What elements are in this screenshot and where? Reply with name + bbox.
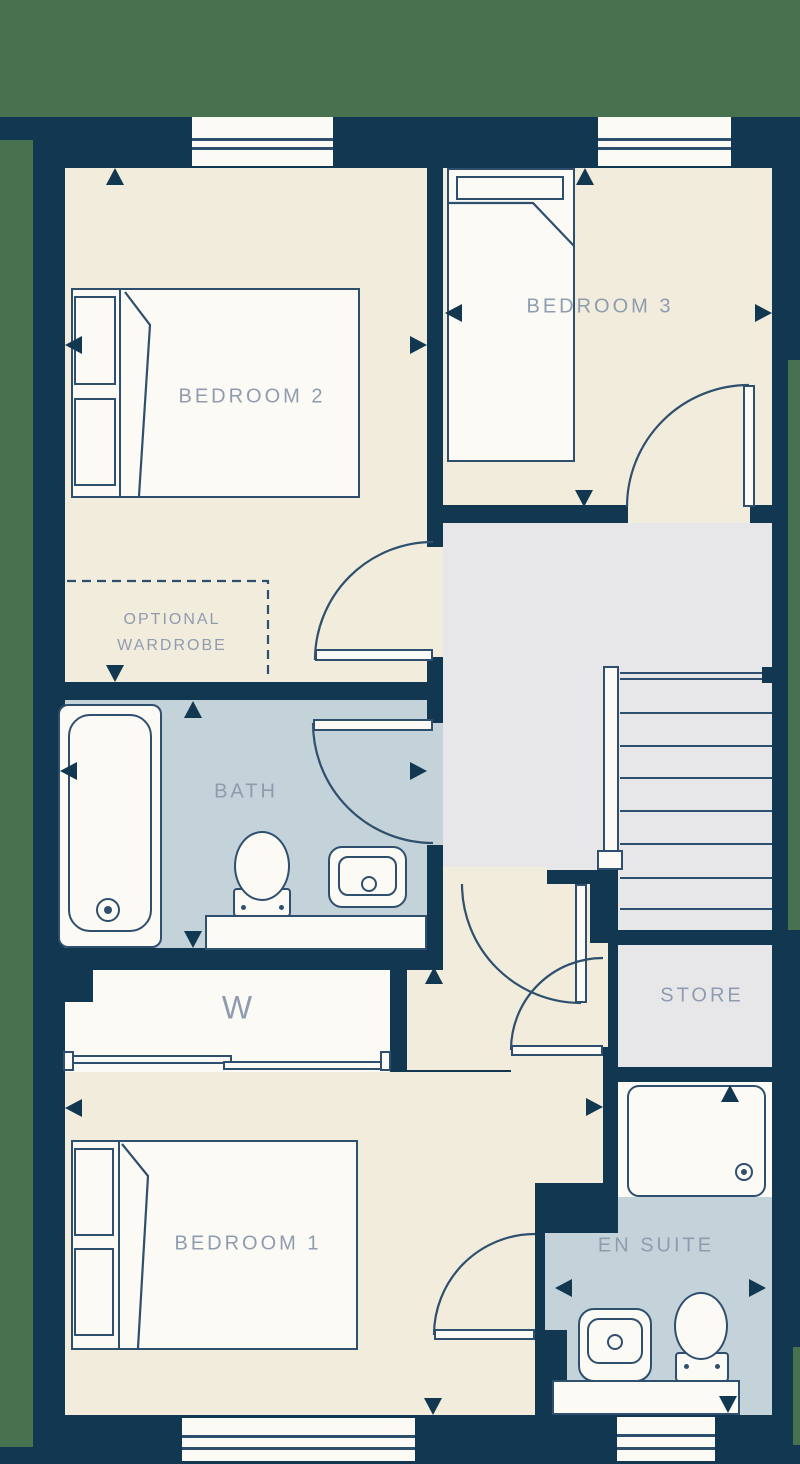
bath-counter	[205, 915, 427, 950]
window-bedroom3	[598, 117, 731, 166]
window-bedroom1	[182, 1418, 415, 1461]
door-leaf-bedroom2	[315, 649, 433, 661]
window-bedroom2-bar1	[192, 138, 333, 141]
doorway-bath	[427, 723, 443, 845]
stair-newel-post	[597, 850, 623, 870]
doorway-bedroom3	[628, 505, 750, 523]
floor-plan: BEDROOM 2 BEDROOM 3 BEDROOM 1 BATH STORE…	[0, 0, 800, 1464]
bed1-pillow-bottom	[74, 1248, 114, 1336]
outside-right-strip-upper	[788, 360, 800, 930]
door-leaf-bath	[313, 719, 433, 731]
toilet-ensuite-bowl-icon	[674, 1292, 728, 1360]
sliding-door-left	[68, 1055, 232, 1064]
direction-marker-up-icon	[721, 1085, 739, 1102]
outside-left-strip	[0, 140, 33, 1447]
shower-drain-dot	[741, 1169, 747, 1175]
window-bedroom1-bar1	[182, 1435, 415, 1438]
stair-railing	[603, 666, 619, 852]
stair-step	[620, 745, 772, 747]
outside-right-strip-lower	[793, 1347, 800, 1445]
floor-stairwell	[618, 870, 772, 930]
floor-hall-lower-left	[407, 1047, 511, 1070]
stair-step	[620, 672, 772, 674]
room-label-bath: BATH	[214, 781, 278, 804]
direction-marker-right-icon	[410, 762, 427, 780]
window-ensuite-bar2	[617, 1447, 715, 1450]
room-label-bedroom3: BEDROOM 3	[526, 296, 673, 319]
room-label-wardrobe: W	[222, 990, 252, 1027]
direction-marker-down-icon	[424, 1398, 442, 1415]
window-bedroom3-bar1	[598, 138, 731, 141]
direction-marker-left-icon	[60, 762, 77, 780]
door-leaf-landing	[575, 884, 587, 1003]
direction-marker-left-icon	[445, 304, 462, 322]
direction-marker-right-icon	[755, 304, 772, 322]
basin-ensuite-drain	[607, 1334, 623, 1350]
basin-bath-drain	[361, 876, 377, 892]
bed1-pillow-top	[74, 1148, 114, 1236]
doorway-landing	[443, 867, 547, 884]
window-bedroom2	[192, 117, 333, 166]
room-label-optional-wardrobe-line1: OPTIONAL	[124, 611, 221, 629]
direction-marker-up-icon	[106, 168, 124, 185]
door-leaf-bedroom1	[511, 1045, 603, 1056]
direction-marker-right-icon	[749, 1279, 766, 1297]
toilet-ensuite-dot1	[684, 1364, 689, 1369]
window-ensuite	[617, 1417, 715, 1461]
direction-marker-left-icon	[65, 1099, 82, 1117]
direction-marker-down-icon	[575, 490, 593, 507]
floor-hall-upper	[443, 884, 590, 943]
stair-step	[620, 678, 772, 680]
sliding-door-right	[223, 1061, 387, 1070]
window-ensuite-bar1	[617, 1434, 715, 1437]
direction-marker-down-icon	[719, 1396, 737, 1413]
floor-ensuite-top	[618, 1197, 772, 1233]
direction-marker-right-icon	[586, 1098, 603, 1116]
outside-top	[0, 0, 800, 117]
toilet-bath-bowl-icon	[234, 831, 290, 901]
doorway-bedroom2	[427, 547, 443, 657]
room-label-store: STORE	[660, 985, 744, 1008]
room-label-ensuite: EN SUITE	[598, 1235, 714, 1258]
bed3-pillow	[456, 176, 564, 200]
stair-step	[620, 712, 772, 714]
direction-marker-up-icon	[425, 967, 443, 984]
room-label-bedroom2: BEDROOM 2	[178, 386, 325, 409]
direction-marker-right-icon	[410, 336, 427, 354]
direction-marker-left-icon	[555, 1279, 572, 1297]
toilet-bath-dot1	[241, 905, 246, 910]
direction-marker-down-icon	[106, 665, 124, 682]
toilet-bath-dot2	[279, 905, 284, 910]
sliding-door-cap-right	[380, 1051, 391, 1071]
stair-step	[620, 877, 772, 879]
window-bedroom2-bar2	[192, 147, 333, 150]
room-label-optional-wardrobe-line2: WARDROBE	[117, 637, 227, 655]
room-label-bedroom1: BEDROOM 1	[174, 1233, 321, 1256]
window-bedroom3-bar2	[598, 147, 731, 150]
door-leaf-bedroom3	[743, 385, 755, 507]
window-bedroom1-bar2	[182, 1447, 415, 1450]
direction-marker-down-icon	[184, 931, 202, 948]
direction-marker-left-icon	[65, 336, 82, 354]
toilet-ensuite-dot2	[715, 1364, 720, 1369]
bed2-headboard-line	[119, 288, 121, 498]
bed1-headboard-line	[118, 1140, 120, 1350]
direction-marker-up-icon	[184, 701, 202, 718]
railing-wall-nub	[762, 667, 772, 683]
direction-marker-up-icon	[576, 168, 594, 185]
stair-step	[620, 810, 772, 812]
stair-step	[620, 777, 772, 779]
stair-step	[620, 843, 772, 845]
bed2-pillow-bottom	[74, 398, 116, 486]
sliding-door-cap-left	[63, 1051, 74, 1071]
door-leaf-ensuite	[434, 1329, 535, 1340]
ensuite-counter	[552, 1380, 740, 1415]
bathtub-drain-dot	[104, 906, 112, 914]
stair-step	[620, 908, 772, 910]
